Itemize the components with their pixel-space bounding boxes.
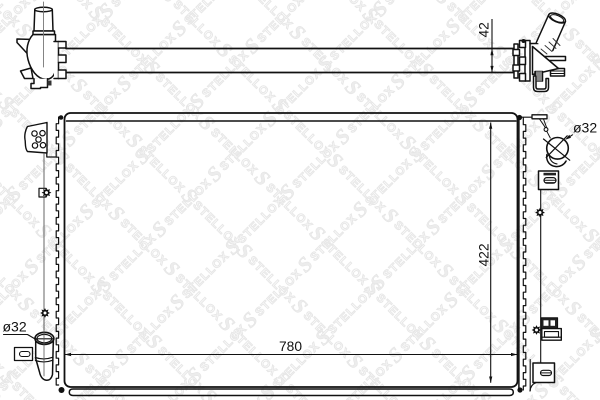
svg-text:422: 422 <box>476 243 491 266</box>
svg-text:42: 42 <box>477 22 492 37</box>
svg-text:780: 780 <box>279 339 302 354</box>
svg-text:ø32: ø32 <box>3 319 27 335</box>
svg-text:ø32: ø32 <box>573 120 597 136</box>
